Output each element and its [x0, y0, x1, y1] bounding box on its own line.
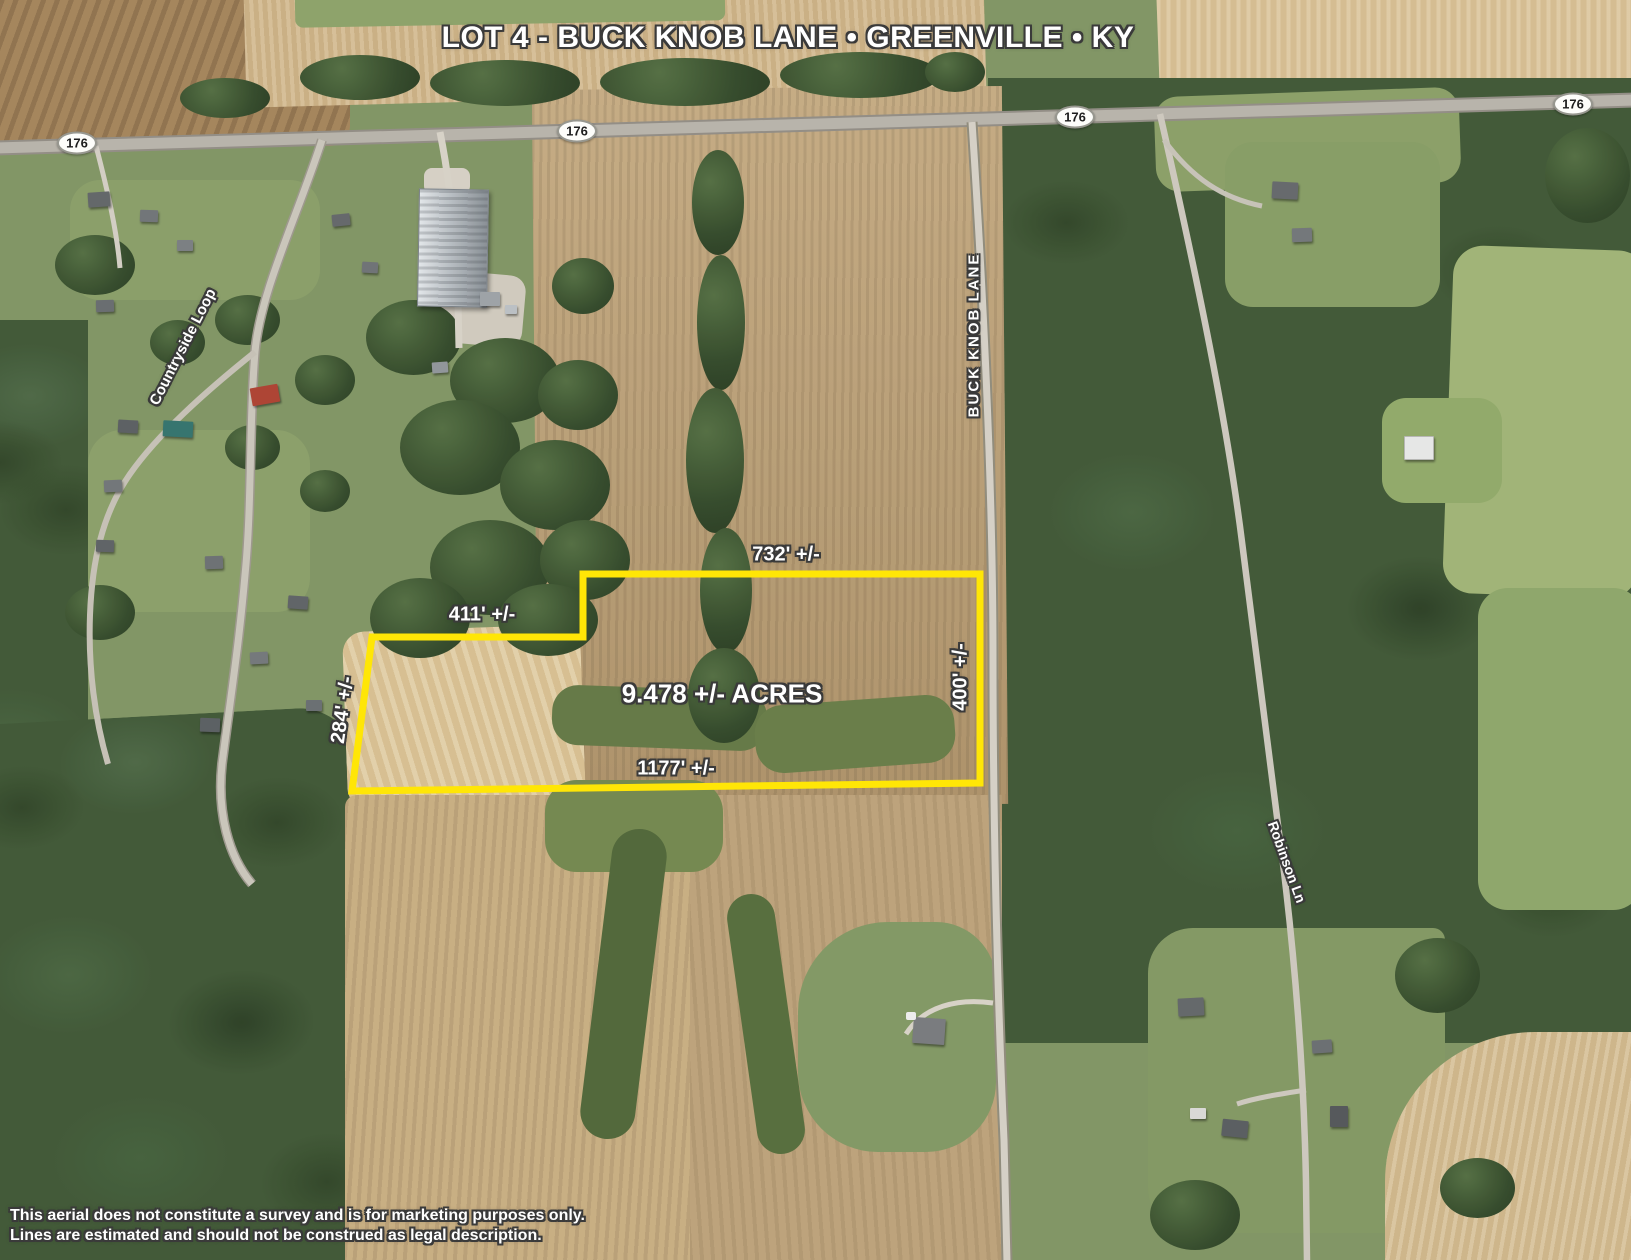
route-shield-176-west: 176 [57, 132, 97, 155]
route-shield-label: 176 [1562, 97, 1584, 112]
route-shield-label: 176 [66, 136, 88, 151]
dimension-label-northwest: 411' +/- [449, 604, 515, 627]
parcel-boundary-layer [0, 0, 1631, 1260]
dimension-label-north: 732' +/- [752, 544, 820, 567]
route-shield-label: 176 [566, 124, 588, 139]
dimension-label-south: 1177' +/- [637, 758, 715, 781]
route-shield-176-far-east: 176 [1553, 93, 1593, 116]
disclaimer-line-1: This aerial does not constitute a survey… [10, 1206, 585, 1226]
route-shield-label: 176 [1064, 110, 1086, 125]
acreage-label: 9.478 +/- ACRES [622, 679, 823, 710]
route-shield-176-center: 176 [557, 120, 597, 143]
page-title: LOT 4 - BUCK KNOB LANE • GREENVILLE • KY [442, 21, 1135, 55]
disclaimer: This aerial does not constitute a survey… [10, 1206, 585, 1246]
dimension-label-east: 400' +/- [950, 643, 973, 711]
road-label-buck-knob-lane: BUCK KNOB LANE [966, 253, 983, 418]
route-shield-176-east: 176 [1055, 106, 1095, 129]
aerial-map: 176 176 176 176 Countryside Loop BUCK KN… [0, 0, 1631, 1260]
disclaimer-line-2: Lines are estimated and should not be co… [10, 1226, 585, 1246]
